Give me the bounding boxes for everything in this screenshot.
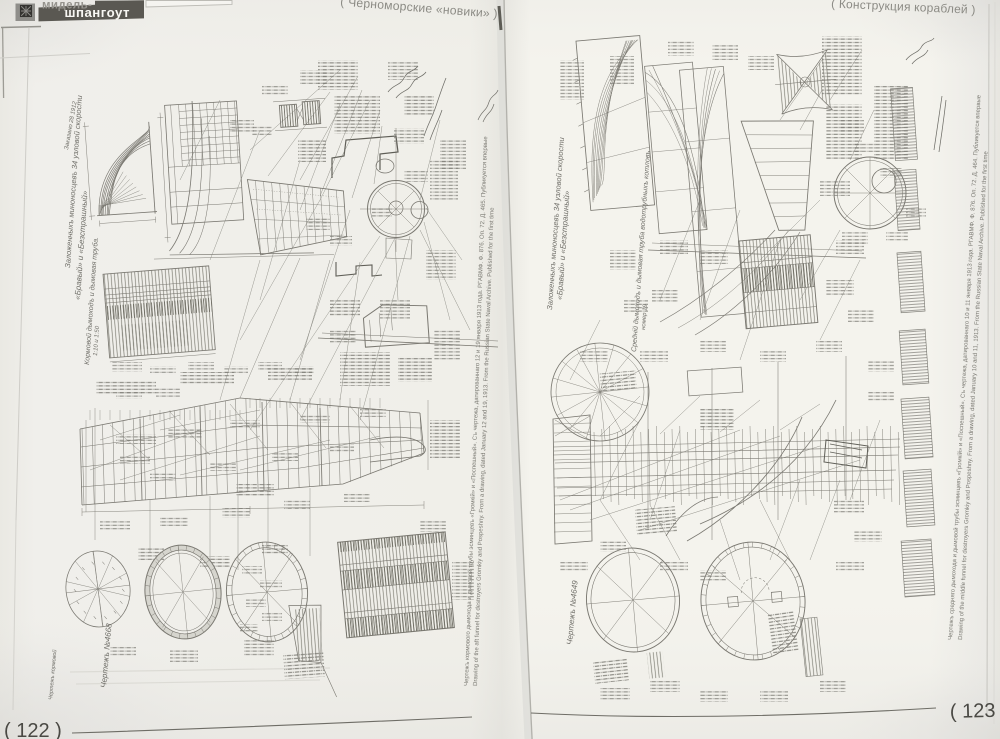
svg-text:( 122 ): ( 122 ): [4, 720, 62, 739]
svg-text:( 123 ): ( 123 ): [950, 699, 1000, 723]
svg-text:шпангоут: шпангоут: [65, 5, 130, 20]
